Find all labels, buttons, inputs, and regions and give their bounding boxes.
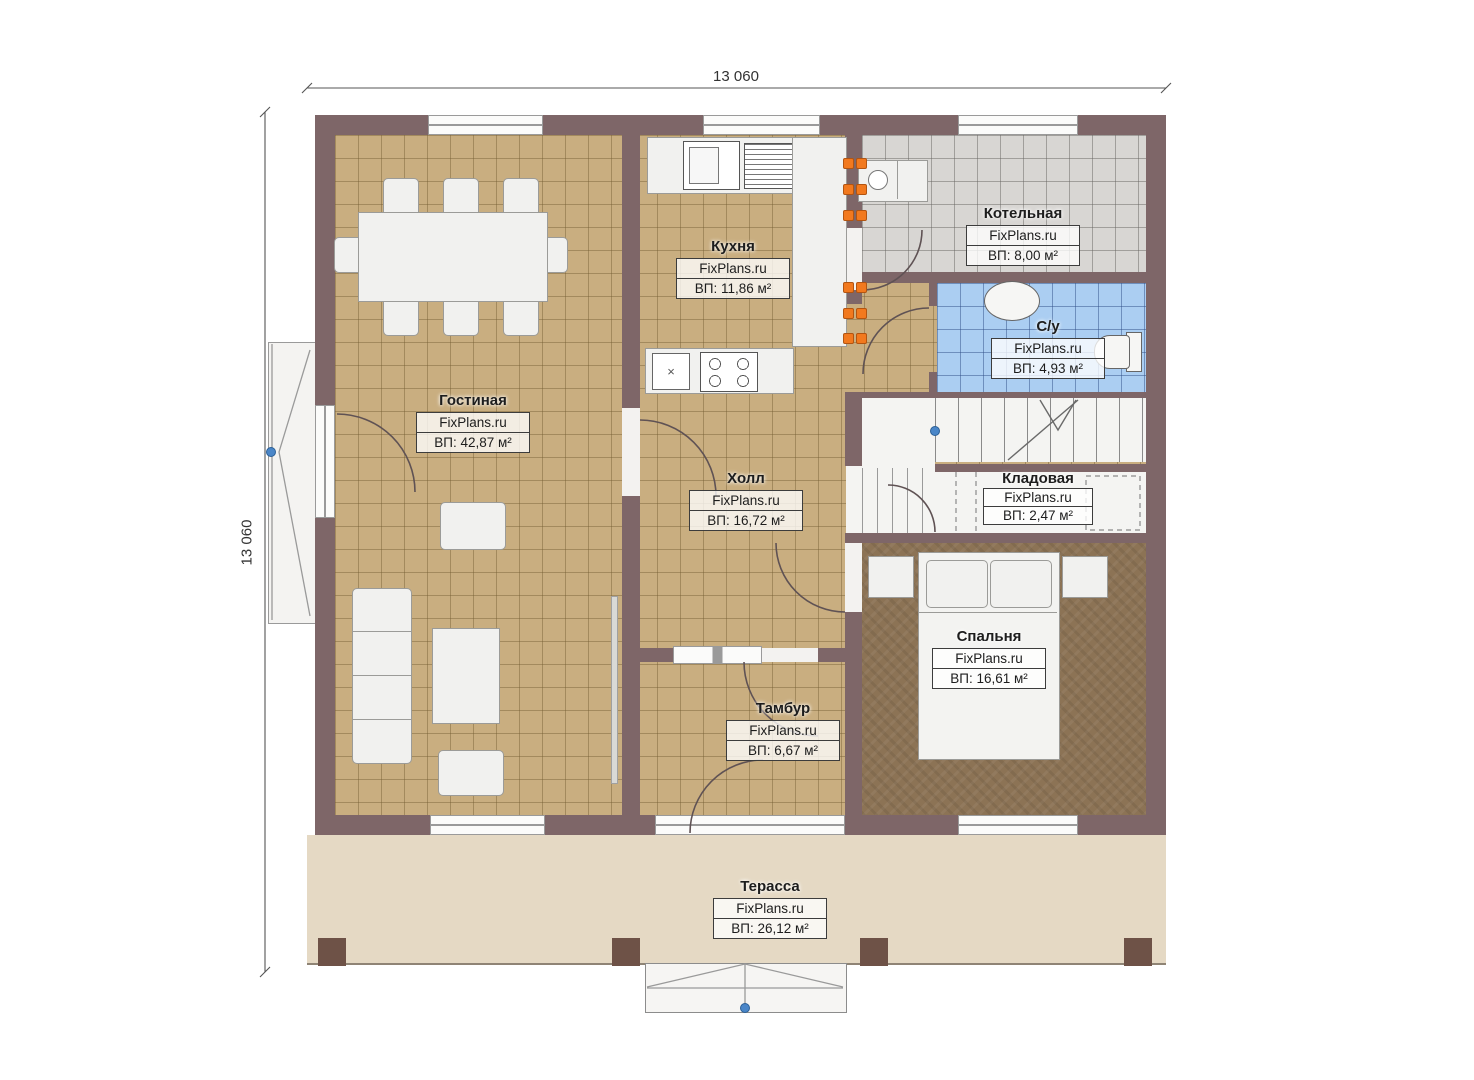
room-area-vestibule: ВП: 6,67 м² xyxy=(727,740,839,760)
dining-chair xyxy=(503,296,539,336)
room-label-hall: Холл FixPlans.ru ВП: 16,72 м² xyxy=(689,470,803,531)
wall-corridor-bath xyxy=(929,372,937,392)
dining-chair xyxy=(443,296,479,336)
entry-opening-bottom xyxy=(655,815,845,835)
room-area-living: ВП: 42,87 м² xyxy=(417,432,529,452)
door-gap-vestibule xyxy=(762,648,818,662)
boiler-unit-divider xyxy=(897,161,898,199)
utility-marker-icon xyxy=(843,282,867,293)
room-brand-terrace: FixPlans.ru xyxy=(714,899,826,918)
room-name-bedroom: Спальня xyxy=(932,628,1046,645)
stair-treads-lower xyxy=(862,468,935,533)
tv-unit xyxy=(611,596,618,784)
terrace-post xyxy=(612,938,640,966)
room-label-terrace: Терасса FixPlans.ru ВП: 26,12 м² xyxy=(713,878,827,939)
room-brand-storage: FixPlans.ru xyxy=(984,489,1092,506)
room-brand-living: FixPlans.ru xyxy=(417,413,529,432)
entry-porch-left xyxy=(268,342,316,624)
room-brand-boiler: FixPlans.ru xyxy=(967,226,1079,245)
room-brand-hall: FixPlans.ru xyxy=(690,491,802,510)
terrace-post xyxy=(860,938,888,966)
room-name-terrace: Терасса xyxy=(713,878,827,895)
utility-marker-icon xyxy=(843,308,867,319)
room-name-kitchen: Кухня xyxy=(676,238,790,255)
kitchen-sink-2: × xyxy=(652,353,690,390)
door-gap-bedroom xyxy=(845,543,862,612)
coffee-table xyxy=(432,628,500,724)
utility-marker-icon xyxy=(843,184,867,195)
sofa xyxy=(352,588,412,764)
window-living-top xyxy=(428,115,543,135)
room-name-vestibule: Тамбур xyxy=(726,700,840,717)
room-brand-vestibule: FixPlans.ru xyxy=(727,721,839,740)
kitchen-counter-right xyxy=(792,137,847,347)
floor-plan: × xyxy=(0,0,1474,1080)
survey-node xyxy=(740,1003,750,1013)
armchair xyxy=(440,502,506,550)
wall-living-center xyxy=(622,135,640,408)
room-brand-bathroom: FixPlans.ru xyxy=(992,339,1104,358)
blanket-line xyxy=(919,612,1057,613)
dining-chair xyxy=(383,296,419,336)
window-kitchen-top xyxy=(703,115,820,135)
room-name-bathroom: С/у xyxy=(991,318,1105,335)
terrace-post xyxy=(1124,938,1152,966)
door-gap-living xyxy=(622,408,640,496)
pillow xyxy=(926,560,988,608)
wall-bath-stairs xyxy=(862,392,1146,398)
room-brand-bedroom: FixPlans.ru xyxy=(933,649,1045,668)
wall-storage-bedroom xyxy=(862,533,1146,543)
entry-opening-left xyxy=(315,405,335,518)
room-area-bathroom: ВП: 4,93 м² xyxy=(992,358,1104,378)
dimension-top-label: 13 060 xyxy=(713,68,759,85)
dimension-left-label: 13 060 xyxy=(238,520,255,566)
armchair xyxy=(438,750,504,796)
boiler-unit-drum xyxy=(868,170,888,190)
utility-marker-icon xyxy=(843,210,867,221)
room-label-storage: Кладовая FixPlans.ru ВП: 2,47 м² xyxy=(983,470,1093,525)
room-name-storage: Кладовая xyxy=(983,470,1093,487)
room-area-kitchen: ВП: 11,86 м² xyxy=(677,278,789,298)
window-living-bottom xyxy=(430,815,545,835)
window-boiler-top xyxy=(958,115,1078,135)
room-label-vestibule: Тамбур FixPlans.ru ВП: 6,67 м² xyxy=(726,700,840,761)
stove xyxy=(700,352,758,392)
kitchen-drainer xyxy=(744,143,798,189)
room-name-hall: Холл xyxy=(689,470,803,487)
terrace-post xyxy=(318,938,346,966)
room-label-bathroom: С/у FixPlans.ru ВП: 4,93 м² xyxy=(991,318,1105,379)
nightstand xyxy=(1062,556,1108,598)
nightstand xyxy=(868,556,914,598)
room-label-bedroom: Спальня FixPlans.ru ВП: 16,61 м² xyxy=(932,628,1046,689)
room-area-hall: ВП: 16,72 м² xyxy=(690,510,802,530)
utility-marker-icon xyxy=(843,333,867,344)
room-name-living: Гостиная xyxy=(416,392,530,409)
kitchen-sink-basin xyxy=(689,147,719,184)
survey-node xyxy=(930,426,940,436)
window-bedroom-bottom xyxy=(958,815,1078,835)
room-brand-kitchen: FixPlans.ru xyxy=(677,259,789,278)
bath-sink xyxy=(984,281,1040,321)
room-label-living: Гостиная FixPlans.ru ВП: 42,87 м² xyxy=(416,392,530,453)
room-area-boiler: ВП: 8,00 м² xyxy=(967,245,1079,265)
room-area-storage: ВП: 2,47 м² xyxy=(984,506,1092,524)
room-name-boiler: Котельная xyxy=(966,205,1080,222)
room-label-kitchen: Кухня FixPlans.ru ВП: 11,86 м² xyxy=(676,238,790,299)
door-gap-boiler xyxy=(845,228,862,290)
stair-treads xyxy=(935,398,1146,462)
dining-table xyxy=(358,212,548,302)
wall-corridor-bath xyxy=(929,283,937,306)
interior-window-vestibule xyxy=(673,646,762,664)
utility-marker-icon xyxy=(843,158,867,169)
survey-node xyxy=(266,447,276,457)
room-area-terrace: ВП: 26,12 м² xyxy=(714,918,826,938)
wall-hall-stairs xyxy=(845,392,862,466)
wall-outer-right xyxy=(1146,115,1166,835)
wall-bedroom-left xyxy=(845,612,862,815)
wall-bedroom-left xyxy=(845,533,862,543)
pillow xyxy=(990,560,1052,608)
room-area-bedroom: ВП: 16,61 м² xyxy=(933,668,1045,688)
room-label-boiler: Котельная FixPlans.ru ВП: 8,00 м² xyxy=(966,205,1080,266)
